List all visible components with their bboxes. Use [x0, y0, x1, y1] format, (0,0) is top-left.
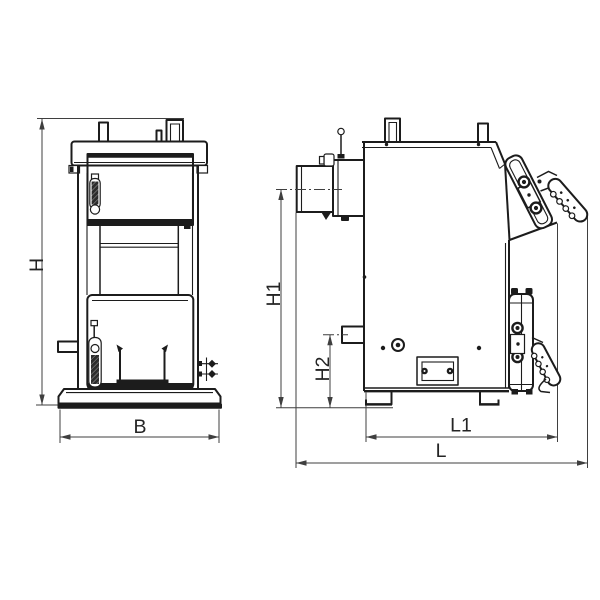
dim-label-h1: H1 — [263, 282, 285, 307]
upper-door-latch-lever — [90, 174, 100, 214]
dim-label-h: H — [26, 258, 48, 272]
front-base-plinth — [58, 389, 223, 409]
front-side-stub — [58, 342, 78, 353]
side-mounting-plate — [417, 357, 458, 385]
drawing-svg: H B — [0, 0, 600, 600]
flue-elbow — [324, 154, 334, 166]
dim-label-l: L — [436, 440, 447, 462]
dim-label-b: B — [133, 416, 146, 438]
dim-label-l1: L1 — [450, 415, 472, 437]
sensor-pin — [338, 128, 344, 134]
boiler-technical-drawing: H B — [0, 0, 600, 600]
dim-label-h2: H2 — [312, 357, 334, 382]
